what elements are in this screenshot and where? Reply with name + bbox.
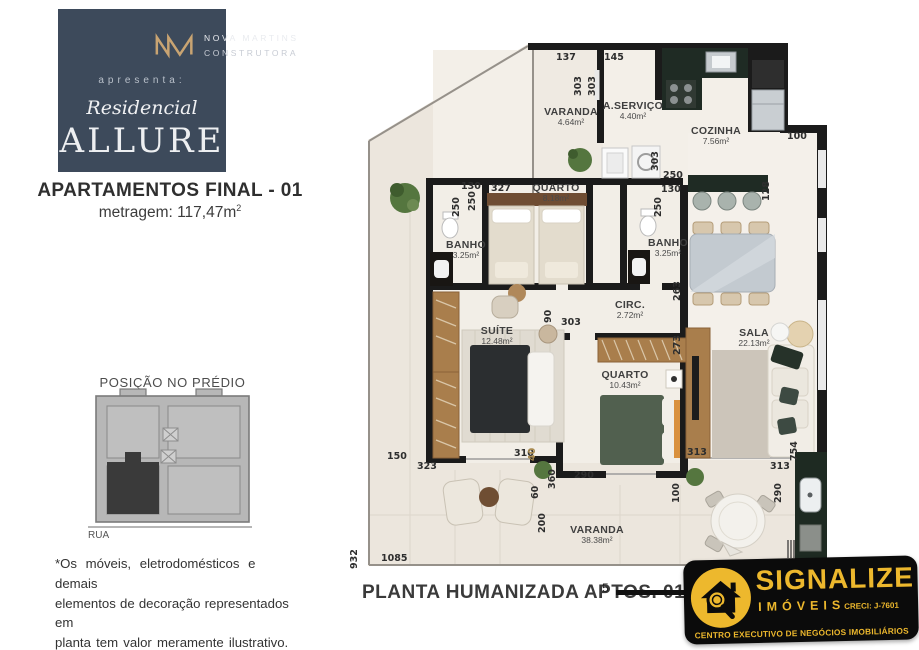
agency-type: IMÓVEIS <box>758 598 845 614</box>
dimension-label: 150 <box>387 451 407 462</box>
dimension-label: 303 <box>650 151 661 171</box>
dimension-label: 40 <box>527 448 538 461</box>
room-label-varanda-main: VARANDA38.38m² <box>570 524 624 545</box>
room-label-banho-1: BANHO3.25m² <box>446 239 486 260</box>
dimension-label: 137 <box>556 52 576 63</box>
dimension-label: 128 <box>761 181 772 201</box>
room-label-cozinha: COZINHA7.56m² <box>691 125 741 146</box>
bedroom2-furniture <box>598 338 686 465</box>
dimension-label: 250 <box>653 197 664 217</box>
dimension-label: 290 <box>574 470 594 481</box>
room-area: 3.25m² <box>446 250 486 260</box>
poster: NOVA MARTINS CONSTRUTORA apresenta: Resi… <box>0 0 919 650</box>
room-label-aservico: A.SERVIÇO4.40m² <box>603 100 663 121</box>
dimension-label: 303 <box>587 76 598 96</box>
dimension-label: 263 <box>672 281 683 301</box>
dimension-label: 360 <box>547 469 558 489</box>
room-area: 12.48m² <box>481 336 513 346</box>
dimension-label: 100 <box>671 483 682 503</box>
dimension-label: 327 <box>491 183 511 194</box>
bar-counter <box>688 175 768 210</box>
room-label-quarto-1: QUARTO8.18m² <box>532 182 579 203</box>
signalize-house-icon <box>690 567 751 628</box>
dimension-label: 290 <box>773 483 784 503</box>
room-area: 4.64m² <box>544 117 598 127</box>
room-area: 7.56m² <box>691 136 741 146</box>
room-area: 22.13m² <box>738 338 769 348</box>
room-label-suite: SUÍTE12.48m² <box>481 325 513 346</box>
floor-plan <box>0 0 919 650</box>
room-label-quarto-2: QUARTO10.43m² <box>601 369 648 390</box>
dimension-label: 130 <box>661 184 681 195</box>
room-area: 10.43m² <box>601 380 648 390</box>
room-label-banho-2: BANHO3.25m² <box>648 237 688 258</box>
room-label-sala: SALA22.13m² <box>738 327 769 348</box>
room-area: 38.38m² <box>570 535 624 545</box>
fridge-icon <box>752 90 784 130</box>
dimension-label: 313 <box>770 461 790 472</box>
dimension-label: 250 <box>467 191 478 211</box>
dimension-label: 200 <box>537 513 548 533</box>
dimension-label: 313 <box>687 447 707 458</box>
dimension-label: 60 <box>530 486 541 499</box>
room-area: 8.18m² <box>532 193 579 203</box>
room-area: 4.40m² <box>603 111 663 121</box>
room-label-varanda-top: VARANDA4.64m² <box>544 106 598 127</box>
dimension-label: 323 <box>417 461 437 472</box>
dimension-label: 303 <box>573 76 584 96</box>
agency-name: SIGNALIZE <box>755 561 914 597</box>
dining-table <box>690 222 775 305</box>
dimension-label: 1085 <box>381 553 407 564</box>
room-area: 3.25m² <box>648 248 688 258</box>
dimension-label: 273 <box>672 335 683 355</box>
room-label-circ: CIRC.2.72m² <box>615 299 645 320</box>
dimension-label: 303 <box>561 317 581 328</box>
room-area: 2.72m² <box>615 310 645 320</box>
agency-creci: CRECI: J-7601 <box>844 601 899 611</box>
dimension-label: 250 <box>663 170 683 181</box>
dimension-label: 754 <box>789 441 800 461</box>
stove-icon <box>666 80 696 108</box>
scale-number: 5 <box>602 581 609 595</box>
dimension-label: 100 <box>787 131 807 142</box>
oven-icon <box>752 60 784 88</box>
dimension-label: 932 <box>349 549 360 569</box>
dimension-label: 250 <box>451 197 462 217</box>
dimension-label: 145 <box>604 52 624 63</box>
dimension-label: 90 <box>543 310 554 323</box>
signalize-logo: SIGNALIZE IMÓVEIS CRECI: J-7601 CENTRO E… <box>683 555 919 644</box>
